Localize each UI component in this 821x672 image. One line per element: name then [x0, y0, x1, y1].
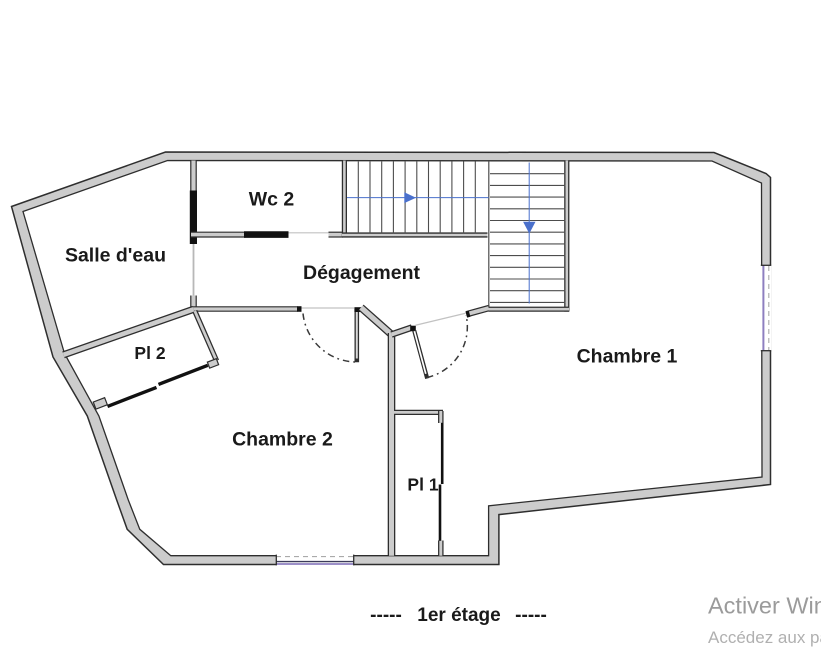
svg-text:Chambre 2: Chambre 2 — [232, 429, 333, 451]
svg-text:Pl 1: Pl 1 — [407, 475, 438, 495]
svg-text:Pl 2: Pl 2 — [134, 343, 165, 363]
svg-text:Salle d'eau: Salle d'eau — [65, 245, 166, 267]
svg-text:-----: ----- — [515, 605, 547, 626]
svg-text:Wc 2: Wc 2 — [249, 189, 295, 211]
svg-text:Activer Windows: Activer Windows — [708, 593, 821, 619]
svg-text:-----: ----- — [370, 605, 402, 626]
svg-text:Dégagement: Dégagement — [303, 262, 421, 284]
svg-text:Chambre 1: Chambre 1 — [577, 346, 678, 368]
svg-text:Accédez aux paramèt: Accédez aux paramèt — [708, 628, 821, 647]
svg-text:1er étage: 1er étage — [417, 605, 500, 626]
